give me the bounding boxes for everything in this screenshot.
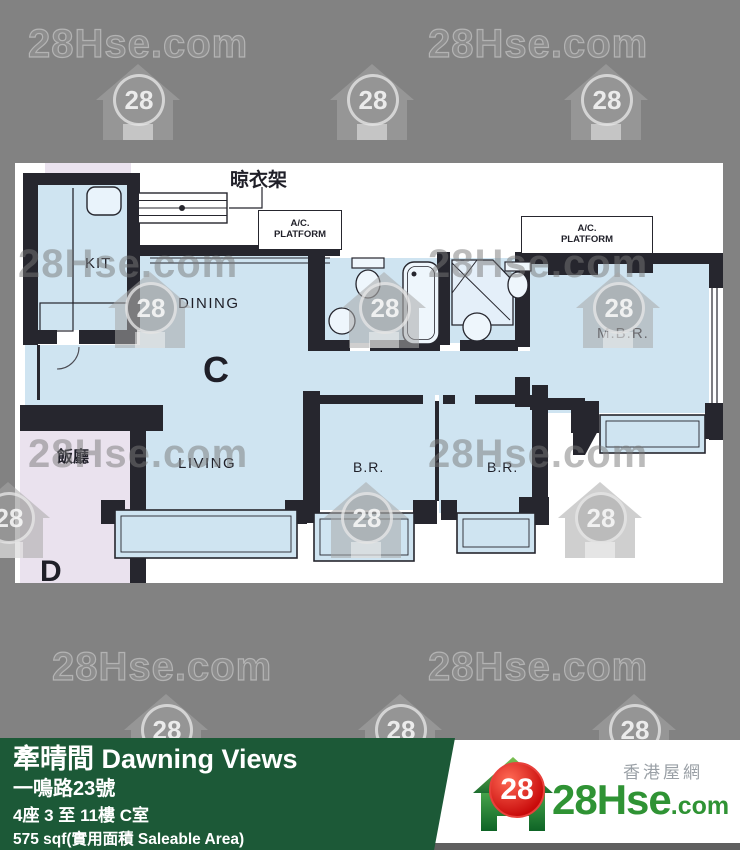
- watermark-house-icon: 28: [330, 64, 414, 144]
- logo-suffix: .com: [671, 792, 729, 821]
- bay-window: [115, 510, 297, 558]
- watermark-house-icon: 28: [564, 64, 648, 144]
- watermark-text: 28Hse.com: [52, 645, 272, 690]
- 28hse-logo[interactable]: 28 香港屋網 28Hse.com: [460, 750, 740, 850]
- estate-address: 一鳴路23號: [13, 777, 455, 802]
- bay-window: [314, 513, 414, 561]
- door-swing: [57, 347, 79, 369]
- wash-basin: [463, 313, 491, 341]
- saleable-area: 575 sqf(實用面積 Saleable Area): [13, 830, 455, 850]
- estate-title: 牽晴間 Dawning Views: [13, 743, 455, 775]
- plan-fixtures: [15, 163, 723, 583]
- bathtub: [403, 262, 439, 344]
- logo-badge: 28: [489, 762, 545, 818]
- watermark-text: 28Hse.com: [428, 22, 648, 67]
- watermark-text: 28Hse.com: [428, 645, 648, 690]
- wash-basin: [329, 308, 355, 334]
- leader-line: [229, 187, 262, 208]
- logo-brand: 28Hse: [552, 776, 671, 824]
- floor-plan: A/C. PLATFORM A/C. PLATFORM 晾衣架 KIT DINI…: [15, 163, 723, 583]
- logo-wordmark: 28Hse.com: [552, 776, 729, 824]
- property-info-bar: 牽晴間 Dawning Views 一鳴路23號 4座 3 至 11樓 C室 5…: [0, 738, 455, 850]
- logo-house-door-icon: [497, 816, 529, 831]
- wall-corner: [573, 403, 599, 455]
- kitchen-sink: [87, 187, 121, 215]
- watermark-house-icon: 28: [96, 64, 180, 144]
- block-floor-unit: 4座 3 至 11樓 C室: [13, 805, 455, 827]
- toilet: [505, 262, 531, 271]
- watermark-text: 28Hse.com: [28, 22, 248, 67]
- toilet: [352, 258, 384, 268]
